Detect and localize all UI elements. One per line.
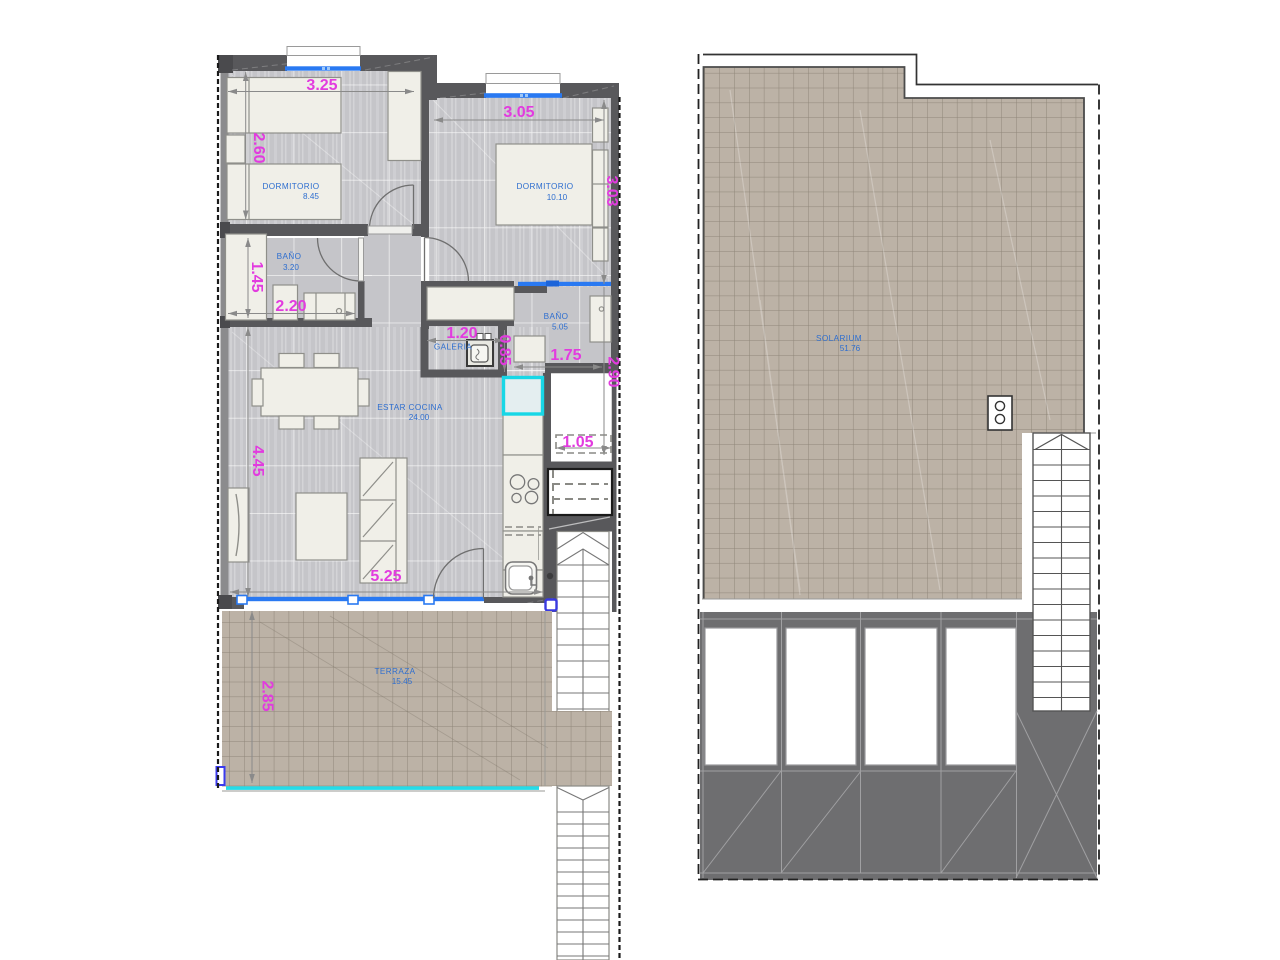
svg-text:1.05: 1.05 xyxy=(562,434,593,451)
svg-text:SOLARIUM: SOLARIUM xyxy=(816,334,862,343)
svg-text:3.25: 3.25 xyxy=(306,77,337,94)
svg-text:24.00: 24.00 xyxy=(409,413,430,422)
svg-text:BAÑO: BAÑO xyxy=(544,311,569,321)
svg-text:8.45: 8.45 xyxy=(303,192,319,201)
svg-text:2.20: 2.20 xyxy=(275,298,306,315)
svg-text:DORMITORIO: DORMITORIO xyxy=(262,182,319,191)
svg-text:ESTAR COCINA: ESTAR COCINA xyxy=(377,403,443,412)
svg-text:3.20: 3.20 xyxy=(283,263,299,272)
svg-text:2.90: 2.90 xyxy=(605,356,622,387)
svg-text:3.03: 3.03 xyxy=(603,175,620,206)
svg-text:DORMITORIO: DORMITORIO xyxy=(516,182,573,191)
svg-text:15.45: 15.45 xyxy=(392,677,413,686)
svg-text:4.45: 4.45 xyxy=(249,445,266,476)
svg-text:GALERIA: GALERIA xyxy=(434,343,472,352)
svg-text:3.05: 3.05 xyxy=(503,104,534,121)
svg-text:1.20: 1.20 xyxy=(446,325,477,342)
svg-text:51.76: 51.76 xyxy=(840,344,861,353)
svg-text:BAÑO: BAÑO xyxy=(277,251,302,261)
svg-text:1.45: 1.45 xyxy=(248,261,265,292)
svg-text:0.85: 0.85 xyxy=(496,334,513,365)
svg-text:5.25: 5.25 xyxy=(370,568,401,585)
svg-text:2.60: 2.60 xyxy=(250,132,267,163)
svg-text:5.05: 5.05 xyxy=(552,323,568,332)
svg-text:10.10: 10.10 xyxy=(547,193,568,202)
svg-text:TERRAZA: TERRAZA xyxy=(374,667,415,676)
svg-text:2.85: 2.85 xyxy=(259,680,276,711)
svg-text:1.75: 1.75 xyxy=(550,347,581,364)
